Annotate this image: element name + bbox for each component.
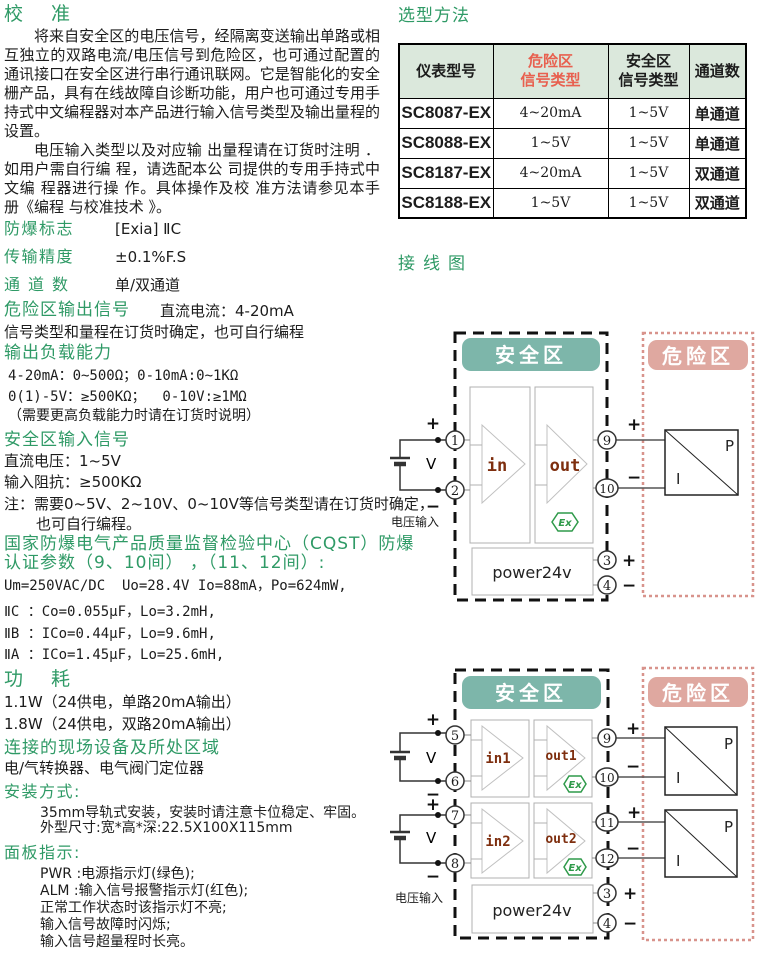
in2-amplifier-block: in2 <box>471 803 529 878</box>
calibration-paragraph-1: 将来自安全区的电压信号，经隔离变送输出单路或相互独立的双路电流/电压信号到危险区… <box>4 27 380 141</box>
section-heading-safe-input: 安全区输入信号 <box>4 430 130 450</box>
load-line-2: 0(1)-5V：≥500KΩ； 0-10V:≥1MΩ <box>8 389 247 406</box>
out2-amplifier-block: out2 Ex <box>534 803 592 878</box>
column-header-model-label: 仪表型号 <box>400 62 493 81</box>
minus-sign: − <box>626 757 640 777</box>
power-label: power24v <box>492 901 571 920</box>
calibration-paragraph-2: 电压输入类型以及对应输 出量程请在订货时注明 ．如用户需自行编 程，请选配本公 … <box>4 141 380 217</box>
section-heading-power-consumption: 功耗 <box>4 668 98 691</box>
note-hazard-output: 信号类型和量程在订货时确定，也可自行编程 <box>4 323 304 341</box>
i-label: I <box>676 470 680 488</box>
section-heading-calibration: 校准 <box>4 3 98 26</box>
table-row: SC8188-EX 1~5V 1~5V 双通道 <box>399 188 746 218</box>
minus-sign: − <box>426 497 440 517</box>
p-label: P <box>724 735 733 753</box>
column-header-safe-signal: 安全区 信号类型 <box>608 44 689 98</box>
in1-amplifier-block: in1 <box>471 720 529 797</box>
wire-junction-dot <box>435 730 441 736</box>
cqst-line-1: Um=250VAC/DC Uo=28.4V Io=88mA，Po=624mW, <box>4 578 347 595</box>
section-heading-hazard-output: 危险区输出信号 <box>4 300 130 320</box>
pi-converter-2: P I <box>665 810 737 877</box>
wire-junction-dot <box>435 437 441 443</box>
cell-hazard-signal: 1~5V <box>493 188 608 218</box>
out2-label: out2 <box>545 832 576 847</box>
hazard-zone-label: 危险区 <box>662 681 734 705</box>
out-label: out <box>550 456 581 476</box>
cell-channels: 双通道 <box>689 158 746 188</box>
cell-model: SC8188-EX <box>399 188 493 218</box>
terminal-3: 3 <box>603 887 611 902</box>
i-label: I <box>676 852 680 870</box>
terminal-12: 12 <box>599 852 614 866</box>
safe-zone-label: 安全区 <box>495 343 567 367</box>
out1-amplifier-block: out1 Ex <box>534 720 592 797</box>
in-amplifier-block: in <box>470 387 530 543</box>
terminal-7: 7 <box>451 809 459 824</box>
cell-hazard-signal: 4~20mA <box>493 98 608 128</box>
terminal-3: 3 <box>603 554 611 569</box>
model-selection-table: 仪表型号 危险区 信号类型 安全区 信号类型 通道数 SC8087-EX 4~2… <box>398 43 747 219</box>
panel-line-2: ALM :输入信号报警指示灯(红色); <box>40 883 248 900</box>
cell-channels: 双通道 <box>689 188 746 218</box>
cqst-line-4: ⅡA ：ICo=1.45μF，Lo=25.6mH, <box>4 647 224 664</box>
hazard-zone-label: 危险区 <box>662 344 734 368</box>
ex-label: Ex <box>568 780 582 791</box>
terminal-4: 4 <box>603 579 611 594</box>
ex-label: Ex <box>558 518 572 529</box>
wire-junction-dot <box>435 860 441 866</box>
cell-safe-signal: 1~5V <box>608 128 689 158</box>
voltage-input-caption: 电压输入 <box>395 890 443 905</box>
section-heading-field-devices: 连接的现场设备及所处区域 <box>4 738 220 758</box>
section-heading-cqst-1: 国家防爆电气产品质量监督检验中心（CQST）防爆 <box>4 534 414 554</box>
safe-input-note-1: 注：需要0~5V、2~10V、0~10V等信号类型请在订货时确定， <box>4 495 434 513</box>
value-explosion-mark: [Exia] ⅡC <box>115 220 181 238</box>
voltage-label: V <box>426 455 437 473</box>
wiring-diagram-dual-channel: 安全区 危险区 + − V + − V 电压输入 <box>381 650 759 952</box>
value-accuracy: ±0.1%F.S <box>115 248 186 266</box>
cell-model: SC8088-EX <box>399 128 493 158</box>
safe-input-line-2: 输入阻抗：≥500KΩ <box>4 473 142 491</box>
power-block: power24v <box>472 548 598 595</box>
voltage-label: V <box>426 829 437 847</box>
terminal-9: 9 <box>603 732 611 747</box>
load-line-1: 4-20mA：0~500Ω；0-10mA:0~1KΩ <box>8 368 238 385</box>
minus-sign: − <box>622 576 636 596</box>
load-line-3: （需要更高负载能力时请在订货时说明） <box>8 408 260 425</box>
hazard-zone-border <box>643 668 753 940</box>
value-hazard-output: 直流电流：4-20mA <box>160 302 294 320</box>
mounting-line-2: 外型尺寸:宽*高*深:22.5X100X115mm <box>40 820 293 837</box>
terminal-4: 4 <box>603 917 611 932</box>
safe-input-note-2: 也可自行编程。 <box>36 515 141 533</box>
power-line-2: 1.8W（24供电，双路20mA输出） <box>4 715 241 733</box>
cell-safe-signal: 1~5V <box>608 188 689 218</box>
label-channels: 通道数 <box>4 275 76 294</box>
column-header-hazard-line1: 危险区 <box>494 52 608 71</box>
safe-input-line-1: 直流电压：1~5V <box>4 452 121 470</box>
cell-hazard-signal: 1~5V <box>493 128 608 158</box>
panel-line-5: 输入信号超量程时长亮。 <box>40 934 194 951</box>
cell-safe-signal: 1~5V <box>608 158 689 188</box>
voltage-label: V <box>426 749 437 767</box>
panel-line-3: 正常工作状态时该指示灯不亮; <box>40 900 227 917</box>
out1-label: out1 <box>545 749 576 764</box>
pi-converter: P I <box>665 430 738 495</box>
wire-junction-dot <box>435 487 441 493</box>
terminal-5: 5 <box>451 729 459 744</box>
p-label: P <box>724 818 733 836</box>
table-row: SC8088-EX 1~5V 1~5V 单通道 <box>399 128 746 158</box>
wire-junction-dot <box>435 778 441 784</box>
section-heading-panel-indicators: 面板指示: <box>4 843 81 862</box>
terminal-11: 11 <box>599 816 614 830</box>
label-accuracy: 传输精度 <box>4 247 74 266</box>
datasheet-page: 校准 将来自安全区的电压信号，经隔离变送输出单路或相互独立的双路电流/电压信号到… <box>0 0 761 955</box>
field-devices-line: 电/气转换器、电气阀门定位器 <box>4 759 204 777</box>
plus-sign: + <box>426 710 440 730</box>
terminal-1: 1 <box>451 434 459 449</box>
terminal-10: 10 <box>599 771 614 785</box>
terminal-6: 6 <box>451 775 459 790</box>
plus-sign: + <box>627 803 641 823</box>
column-header-channels: 通道数 <box>689 44 746 98</box>
in1-label: in1 <box>485 751 510 767</box>
table-row: SC8087-EX 4~20mA 1~5V 单通道 <box>399 98 746 128</box>
minus-sign: − <box>626 839 640 859</box>
plus-sign: + <box>626 719 640 739</box>
column-header-hazard-signal: 危险区 信号类型 <box>493 44 608 98</box>
plus-sign: + <box>426 795 440 815</box>
minus-sign: − <box>627 468 641 488</box>
voltage-source <box>390 440 446 490</box>
cqst-line-3: ⅡB ：ICo=0.44μF，Lo=9.6mH, <box>4 626 216 643</box>
terminal-2: 2 <box>451 484 459 499</box>
terminal-8: 8 <box>451 857 459 872</box>
cell-safe-signal: 1~5V <box>608 98 689 128</box>
cell-channels: 单通道 <box>689 98 746 128</box>
safe-zone-label: 安全区 <box>495 681 567 705</box>
panel-line-4: 输入信号故障时闪烁; <box>40 917 171 934</box>
column-header-safe-line2: 信号类型 <box>609 71 689 90</box>
section-heading-cqst-2: 认证参数（9、10间） ，（11、12间）: <box>4 553 325 573</box>
power-block: power24v <box>472 885 598 933</box>
in-label: in <box>487 456 507 476</box>
value-channels: 单/双通道 <box>115 276 180 294</box>
i-label: I <box>676 769 680 787</box>
section-heading-mounting: 安装方式: <box>4 782 81 801</box>
terminal-9: 9 <box>603 434 611 449</box>
column-header-safe-line1: 安全区 <box>609 52 689 71</box>
ex-label: Ex <box>568 863 582 874</box>
column-header-hazard-line2: 信号类型 <box>494 71 608 90</box>
plus-sign: + <box>622 551 636 571</box>
plus-sign: + <box>627 415 641 435</box>
cell-channels: 单通道 <box>689 128 746 158</box>
minus-sign: − <box>426 867 440 887</box>
plus-sign: + <box>426 414 440 434</box>
panel-line-1: PWR :电源指示灯(绿色); <box>40 866 195 883</box>
minus-sign: − <box>623 914 637 934</box>
wiring-diagram-single-channel: 安全区 危险区 + − V 电压输入 in out <box>381 326 759 624</box>
cell-model: SC8087-EX <box>399 98 493 128</box>
power-line-1: 1.1W（24供电，单路20mA输出） <box>4 693 241 711</box>
section-heading-output-load: 输出负载能力 <box>4 343 112 363</box>
section-heading-selection: 选型方法 <box>398 6 470 26</box>
cqst-line-2: ⅡC ：Co=0.055μF，Lo=3.2mH, <box>4 604 216 621</box>
voltage-source-1 <box>390 733 446 781</box>
voltage-input-caption: 电压输入 <box>391 514 439 529</box>
cell-hazard-signal: 4~20mA <box>493 158 608 188</box>
plus-sign: + <box>623 884 637 904</box>
in2-label: in2 <box>485 834 510 850</box>
cell-model: SC8187-EX <box>399 158 493 188</box>
pi-converter-1: P I <box>665 727 737 795</box>
power-label: power24v <box>492 563 571 582</box>
table-row: SC8187-EX 4~20mA 1~5V 双通道 <box>399 158 746 188</box>
section-heading-wiring: 接线图 <box>398 254 473 274</box>
table-header-row: 仪表型号 危险区 信号类型 安全区 信号类型 通道数 <box>399 44 746 98</box>
column-header-channels-label: 通道数 <box>690 62 746 81</box>
p-label: P <box>725 437 734 455</box>
label-explosion-mark: 防爆标志 <box>4 219 74 238</box>
terminal-10: 10 <box>599 482 614 496</box>
voltage-source-2 <box>390 815 446 863</box>
column-header-model: 仪表型号 <box>399 44 493 98</box>
